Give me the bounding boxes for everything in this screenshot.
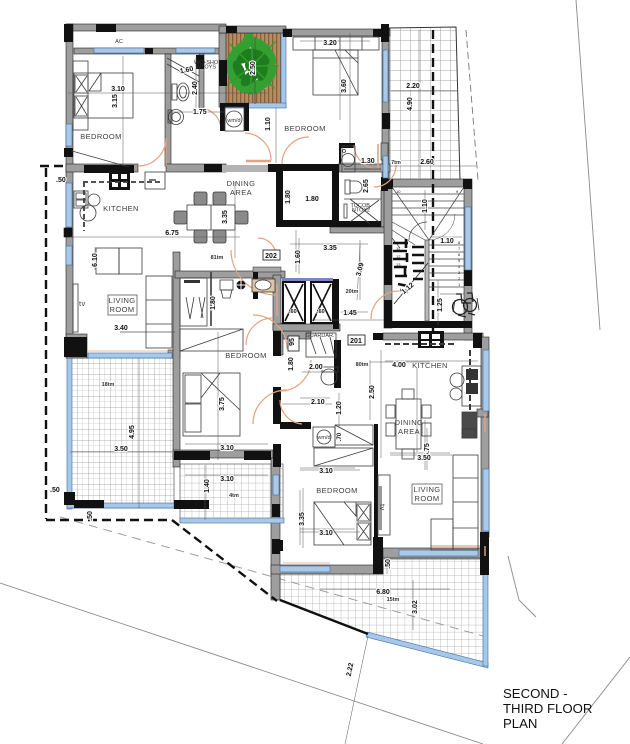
- svg-text:.50: .50: [385, 559, 392, 569]
- svg-text:6.10: 6.10: [92, 253, 99, 267]
- svg-text:3.35: 3.35: [222, 210, 229, 224]
- svg-text:wm/d: wm/d: [316, 435, 330, 441]
- svg-text:6: 6: [458, 252, 461, 257]
- svg-text:3.10: 3.10: [220, 476, 234, 483]
- svg-text:1.75: 1.75: [193, 109, 207, 116]
- svg-text:2.50: 2.50: [250, 61, 257, 75]
- svg-text:1.80: 1.80: [288, 357, 295, 371]
- svg-text:DINING: DINING: [227, 179, 256, 188]
- svg-text:AREA: AREA: [398, 427, 420, 436]
- svg-text:.60: .60: [317, 309, 325, 315]
- svg-text:ROOM: ROOM: [415, 494, 440, 503]
- svg-text:DINING: DINING: [395, 418, 424, 427]
- svg-text:10: 10: [396, 189, 401, 194]
- svg-text:BEDROOM: BEDROOM: [80, 132, 122, 141]
- svg-text:KITCHEN: KITCHEN: [412, 361, 448, 370]
- svg-text:LIVING: LIVING: [109, 296, 136, 305]
- svg-text:4.95: 4.95: [129, 425, 136, 439]
- svg-text:1.10: 1.10: [422, 199, 429, 213]
- svg-text:3.09: 3.09: [355, 262, 365, 277]
- svg-text:2.40: 2.40: [192, 81, 199, 95]
- svg-text:3.10: 3.10: [319, 468, 333, 475]
- svg-text:.50: .50: [56, 177, 66, 184]
- svg-text:.50: .50: [87, 511, 94, 521]
- svg-text:.50: .50: [50, 487, 60, 494]
- svg-text:80tm: 80tm: [356, 362, 369, 368]
- svg-text:BEDROOM: BEDROOM: [225, 351, 267, 360]
- svg-text:201: 201: [350, 338, 362, 345]
- svg-text:20tm: 20tm: [346, 289, 359, 295]
- svg-text:.60: .60: [289, 309, 297, 315]
- svg-text:3.35: 3.35: [323, 245, 337, 252]
- svg-text:2.60: 2.60: [420, 159, 434, 166]
- svg-text:1: 1: [458, 282, 461, 287]
- svg-text:6.75: 6.75: [165, 230, 179, 237]
- svg-text:7: 7: [458, 246, 461, 251]
- svg-text:PLAN: PLAN: [503, 716, 537, 731]
- svg-text:2.22: 2.22: [346, 662, 356, 677]
- svg-text:3.40: 3.40: [114, 325, 128, 332]
- svg-text:1.45: 1.45: [343, 310, 357, 317]
- svg-text:3.02: 3.02: [412, 600, 419, 614]
- svg-text:8: 8: [458, 240, 461, 245]
- svg-text:2.10: 2.10: [311, 399, 325, 406]
- svg-text:7tm: 7tm: [391, 160, 401, 166]
- svg-text:18tm: 18tm: [102, 382, 115, 388]
- svg-text:4: 4: [458, 264, 461, 269]
- svg-text:1.80: 1.80: [305, 196, 319, 203]
- svg-text:3.10: 3.10: [319, 530, 333, 537]
- svg-text:.70: .70: [337, 432, 343, 441]
- svg-text:tv: tv: [79, 299, 86, 308]
- svg-text:9: 9: [456, 189, 459, 194]
- svg-text:3.20: 3.20: [323, 40, 337, 47]
- svg-text:81tm: 81tm: [211, 255, 224, 261]
- svg-text:95: 95: [289, 338, 296, 346]
- svg-text:1.60: 1.60: [179, 66, 194, 76]
- svg-text:2.20: 2.20: [406, 83, 420, 90]
- svg-text:THIRD FLOOR: THIRD FLOOR: [503, 701, 592, 716]
- svg-text:KITCHEN: KITCHEN: [103, 204, 139, 213]
- svg-text:1.30: 1.30: [361, 158, 375, 165]
- svg-text:12: 12: [396, 254, 401, 259]
- svg-text:4.00: 4.00: [392, 362, 406, 369]
- svg-text:15tm: 15tm: [387, 597, 400, 603]
- svg-text:1.40: 1.40: [204, 479, 211, 493]
- svg-text:2.00: 2.00: [309, 364, 323, 371]
- svg-text:1.25: 1.25: [437, 298, 444, 312]
- svg-text:4.90: 4.90: [407, 97, 414, 111]
- svg-text:ROOM: ROOM: [110, 305, 135, 314]
- svg-text:3.50: 3.50: [417, 455, 431, 462]
- svg-text:2.65: 2.65: [363, 179, 370, 193]
- svg-text:tv: tv: [378, 504, 387, 511]
- svg-text:LIVING: LIVING: [414, 485, 441, 494]
- svg-text:2.50: 2.50: [369, 385, 376, 399]
- svg-text:1.10: 1.10: [440, 238, 454, 245]
- svg-text:3.50: 3.50: [114, 446, 128, 453]
- svg-text:AREA: AREA: [230, 188, 252, 197]
- svg-text:1.10: 1.10: [265, 117, 272, 131]
- svg-text:SECOND -: SECOND -: [503, 686, 567, 701]
- svg-text:3.15: 3.15: [112, 94, 119, 108]
- svg-text:AC: AC: [115, 39, 123, 45]
- svg-text:BEDROOM: BEDROOM: [316, 486, 358, 495]
- svg-text:1.60: 1.60: [295, 250, 302, 264]
- svg-text:3.35: 3.35: [299, 512, 306, 526]
- svg-text:1.20: 1.20: [336, 401, 343, 415]
- svg-text:13: 13: [396, 262, 401, 267]
- svg-text:WTOYS: WTOYS: [196, 65, 216, 71]
- svg-text:1.80: 1.80: [285, 190, 292, 204]
- svg-text:3: 3: [458, 270, 461, 275]
- svg-text:wm/d: wm/d: [226, 118, 240, 124]
- svg-text:6.80: 6.80: [376, 589, 390, 596]
- svg-text:GUARDAR.: GUARDAR.: [305, 333, 335, 339]
- svg-text:1.80: 1.80: [210, 296, 217, 310]
- svg-text:3.75: 3.75: [219, 397, 226, 411]
- svg-text:202: 202: [265, 253, 277, 260]
- svg-text:3.60: 3.60: [341, 79, 348, 93]
- svg-text:3.10: 3.10: [111, 86, 125, 93]
- svg-text:3.10: 3.10: [220, 445, 234, 452]
- svg-text:BEDROOM: BEDROOM: [284, 124, 326, 133]
- svg-text:4tm: 4tm: [229, 493, 239, 499]
- svg-text:NTOY2: NTOY2: [352, 208, 370, 214]
